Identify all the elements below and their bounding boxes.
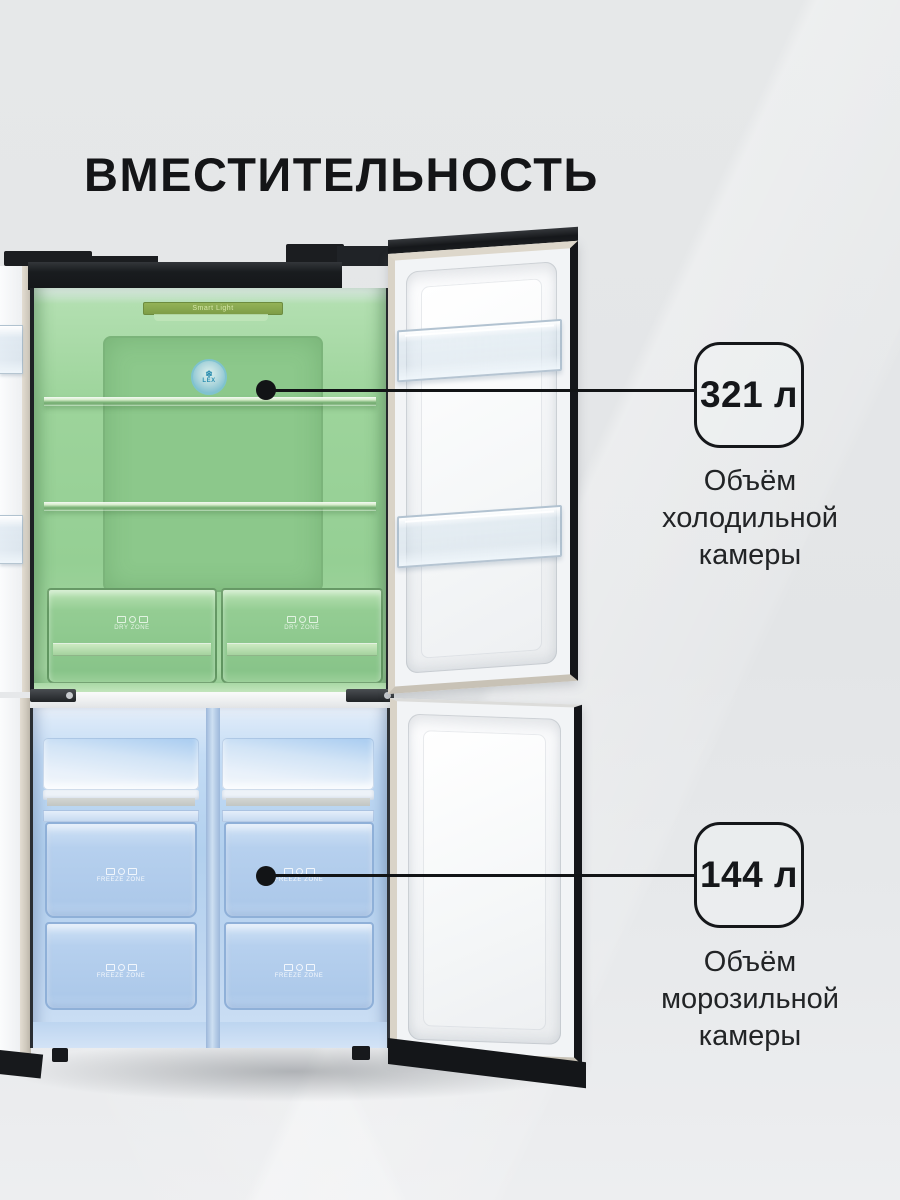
left-door-bin	[0, 515, 23, 564]
freeze-zone-icons	[106, 964, 137, 971]
fridge-volume-caption: Объём холодильной камеры	[600, 463, 900, 574]
fridge-compartment: Smart Light ❄ LEX DRY ZONE DRY ZONE	[30, 288, 390, 692]
freezer-shelf-right	[222, 738, 374, 790]
freeze-zone-icons	[106, 868, 137, 875]
fridge-volume-value: 321 л	[700, 374, 798, 416]
right-freezer-door	[390, 698, 582, 1065]
left-freezer-door	[0, 698, 31, 1070]
crisper-rail	[53, 643, 211, 656]
freezer-drawer: FREEZE ZONE	[224, 822, 374, 918]
freeze-zone-label: FREEZE ZONE	[47, 964, 195, 979]
dry-zone-icons	[117, 616, 148, 623]
fridge-callout-marker-dot	[256, 380, 276, 400]
fridge-callout-line	[266, 389, 694, 392]
fridge-volume-badge: 321 л	[694, 342, 804, 448]
freeze-zone-icons	[284, 964, 315, 971]
fridge-compartment-floor	[34, 683, 386, 692]
page-title: ВМЕСТИТЕЛЬНОСТЬ	[84, 147, 599, 202]
crisper-drawer-left: DRY ZONE	[47, 588, 217, 684]
freezer-shelf-left	[43, 738, 199, 790]
freezer-drawer-frame	[43, 810, 199, 822]
freezer-callout-line	[266, 874, 694, 877]
lex-brand-badge: ❄ LEX	[191, 359, 227, 395]
freezer-center-divider	[206, 708, 220, 1048]
compartment-divider	[30, 692, 390, 708]
door-inner-panel	[423, 730, 546, 1030]
right-fridge-door	[388, 241, 578, 694]
cabinet-foot	[52, 1048, 68, 1062]
middle-hinge-left	[30, 689, 76, 702]
freeze-zone-label: FREEZE ZONE	[226, 964, 372, 979]
freezer-volume-caption: Объём морозильной камеры	[600, 944, 900, 1055]
left-door-bottom-edge	[0, 1050, 43, 1079]
cabinet-foot	[352, 1046, 370, 1060]
freezer-shelf-rail	[226, 798, 370, 806]
dry-zone-label: DRY ZONE	[49, 616, 215, 631]
left-door-bin	[0, 325, 23, 374]
middle-hinge-right	[346, 689, 394, 702]
left-fridge-door	[0, 266, 33, 692]
smart-light-label: Smart Light	[192, 305, 233, 312]
brand-name: LEX	[202, 378, 215, 384]
freezer-volume-value: 144 л	[700, 854, 798, 896]
freezer-drawer-frame	[222, 810, 374, 822]
product-infographic: ВМЕСТИТЕЛЬНОСТЬ Smart Light ❄ LEX DRY ZO…	[0, 0, 900, 1200]
freezer-drawer: FREEZE ZONE	[224, 922, 374, 1010]
freezer-compartment: FREEZE ZONE FREEZE ZONE FREEZE ZONE FREE…	[30, 708, 390, 1048]
glass-shelf	[44, 502, 376, 511]
freeze-zone-label: FREEZE ZONE	[47, 868, 195, 883]
dry-zone-label: DRY ZONE	[223, 616, 381, 631]
brand-snowflake-icon: ❄	[205, 370, 213, 378]
crisper-drawer-right: DRY ZONE	[221, 588, 383, 684]
freezer-callout-marker-dot	[256, 866, 276, 886]
freezer-drawer: FREEZE ZONE	[45, 922, 197, 1010]
crisper-rail	[227, 643, 377, 656]
glass-shelf	[44, 397, 376, 406]
cabinet-top-cap	[28, 262, 342, 290]
dry-zone-icons	[287, 616, 318, 623]
freezer-drawer: FREEZE ZONE	[45, 822, 197, 918]
smart-light-ledge	[154, 314, 268, 321]
freezer-volume-badge: 144 л	[694, 822, 804, 928]
freezer-shelf-rail	[47, 798, 195, 806]
